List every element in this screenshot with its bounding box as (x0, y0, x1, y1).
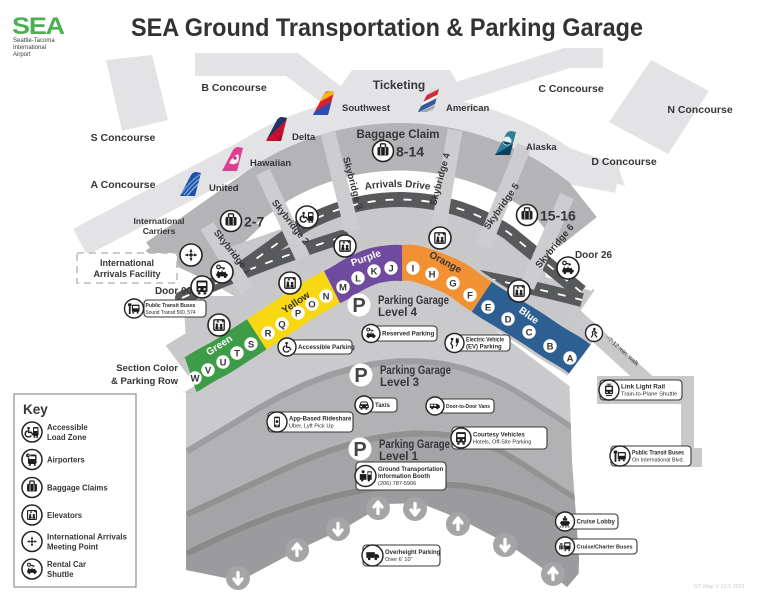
svg-text:E: E (485, 302, 491, 313)
svg-text:Over 6’ 10”: Over 6’ 10” (385, 557, 413, 563)
svg-text:Q: Q (278, 319, 285, 330)
svg-text:Accessible Parking: Accessible Parking (298, 344, 355, 351)
svg-text:App-Based Rideshare: App-Based Rideshare (289, 417, 352, 423)
svg-text:Alaska: Alaska (526, 142, 557, 153)
svg-text:Shuttle: Shuttle (47, 570, 74, 579)
svg-text:T: T (234, 348, 240, 359)
svg-text:Parking Garage: Parking Garage (380, 365, 451, 377)
svg-text:S: S (248, 339, 254, 350)
svg-text:Parking Garage: Parking Garage (379, 439, 450, 451)
svg-text:Train-to-Plane Shuttle: Train-to-Plane Shuttle (621, 392, 677, 398)
svg-text:Uber, Lyft Pick Up: Uber, Lyft Pick Up (289, 424, 334, 430)
svg-text:Electric Vehicle: Electric Vehicle (466, 338, 505, 344)
svg-text:Cruise/Charter Buses: Cruise/Charter Buses (577, 545, 633, 551)
svg-text:8-14: 8-14 (396, 144, 424, 160)
svg-text:Load Zone: Load Zone (47, 433, 87, 442)
svg-text:International Arrivals: International Arrivals (47, 533, 128, 542)
svg-text:Cruise Lobby: Cruise Lobby (577, 520, 616, 526)
svg-text:SEA: SEA (12, 13, 65, 40)
svg-text:Airport: Airport (13, 52, 31, 58)
svg-text:Delta: Delta (292, 132, 316, 143)
svg-text:Public Transit Buses: Public Transit Buses (632, 450, 684, 457)
svg-text:U: U (220, 357, 227, 368)
svg-text:Hawaiian: Hawaiian (250, 158, 291, 169)
svg-text:Parking Garage: Parking Garage (378, 295, 449, 307)
svg-text:Door 00: Door 00 (155, 285, 192, 297)
svg-text:Door 26: Door 26 (575, 249, 612, 261)
svg-text:Information Booth: Information Booth (378, 474, 430, 480)
svg-text:D: D (505, 314, 512, 325)
svg-text:P: P (295, 308, 302, 319)
svg-text:Southwest: Southwest (342, 103, 391, 114)
svg-text:C: C (526, 327, 533, 338)
svg-text:D Concourse: D Concourse (591, 156, 657, 168)
svg-text:Level 4: Level 4 (378, 307, 418, 319)
svg-text:F: F (467, 290, 473, 301)
svg-text:H: H (429, 269, 436, 280)
svg-text:Baggage Claims: Baggage Claims (47, 484, 108, 493)
svg-text:Level 1: Level 1 (379, 451, 419, 463)
svg-text:R: R (265, 328, 272, 339)
svg-text:Carriers: Carriers (143, 226, 176, 236)
svg-text:Seattle-Tacoma: Seattle-Tacoma (13, 38, 55, 44)
svg-text:United: United (209, 183, 239, 194)
svg-text:Rental Car: Rental Car (47, 560, 86, 569)
svg-text:Ground Transportation: Ground Transportation (378, 467, 444, 473)
svg-text:Ticketing: Ticketing (373, 78, 425, 92)
svg-text:(EV) Parking: (EV) Parking (466, 345, 502, 351)
svg-text:Taxis: Taxis (375, 403, 391, 409)
svg-text:15-16: 15-16 (540, 208, 576, 224)
svg-text:N Concourse: N Concourse (667, 104, 733, 116)
svg-text:Reserved Parking: Reserved Parking (382, 331, 434, 338)
svg-text:P: P (352, 295, 365, 317)
svg-text:M: M (339, 282, 347, 293)
svg-text:(206) 787-5906: (206) 787-5906 (378, 481, 416, 487)
svg-text:O: O (308, 299, 315, 310)
svg-text:2-7: 2-7 (244, 214, 264, 230)
svg-text:Accessible: Accessible (47, 423, 88, 432)
svg-text:P: P (353, 439, 366, 461)
svg-text:I: I (412, 263, 415, 274)
svg-text:Key: Key (23, 402, 48, 417)
svg-text:Door-to-Door Vans: Door-to-Door Vans (446, 404, 490, 410)
svg-text:Public Transit Buses: Public Transit Buses (146, 303, 196, 309)
svg-text:K: K (371, 266, 378, 277)
svg-text:G: G (449, 278, 456, 289)
svg-text:B Concourse: B Concourse (201, 82, 267, 94)
svg-text:Link Light Rail: Link Light Rail (621, 384, 665, 391)
svg-text:Overheight Parking: Overheight Parking (385, 550, 441, 556)
svg-text:N: N (323, 291, 330, 302)
svg-text:SEA Ground Transportation & Pa: SEA Ground Transportation & Parking Gara… (131, 14, 643, 42)
svg-text:International: International (133, 216, 184, 226)
svg-text:L: L (355, 273, 361, 284)
svg-text:Baggage Claim: Baggage Claim (356, 129, 439, 141)
svg-text:Hotels, Off-Site Parking: Hotels, Off-Site Parking (473, 440, 531, 446)
svg-text:Section Color: Section Color (116, 363, 178, 374)
svg-text:On International Blvd.: On International Blvd. (632, 458, 684, 464)
svg-text:P: P (354, 365, 367, 387)
svg-text:GT Map V 12.0.2021: GT Map V 12.0.2021 (694, 584, 745, 590)
svg-text:Arrivals Facility: Arrivals Facility (93, 269, 160, 279)
svg-text:International: International (13, 45, 46, 51)
svg-text:V: V (205, 365, 212, 376)
svg-text:International: International (100, 258, 154, 268)
svg-text:W: W (191, 373, 200, 384)
svg-text:B: B (547, 341, 554, 352)
svg-text:Courtesy Vehicles: Courtesy Vehicles (473, 433, 525, 439)
svg-text:Meeting Point: Meeting Point (47, 543, 99, 552)
svg-text:& Parking Row: & Parking Row (111, 376, 179, 387)
svg-text:Elevators: Elevators (47, 511, 83, 520)
svg-text:J: J (388, 263, 393, 274)
svg-text:Airporters: Airporters (47, 456, 85, 465)
svg-text:American: American (446, 103, 489, 114)
svg-text:S Concourse: S Concourse (91, 132, 156, 144)
svg-text:A: A (567, 353, 574, 364)
svg-text:C Concourse: C Concourse (538, 83, 604, 95)
svg-text:Level 3: Level 3 (380, 377, 419, 389)
svg-text:A Concourse: A Concourse (91, 179, 156, 191)
svg-text:Sound Transit 560, 574: Sound Transit 560, 574 (146, 310, 196, 316)
